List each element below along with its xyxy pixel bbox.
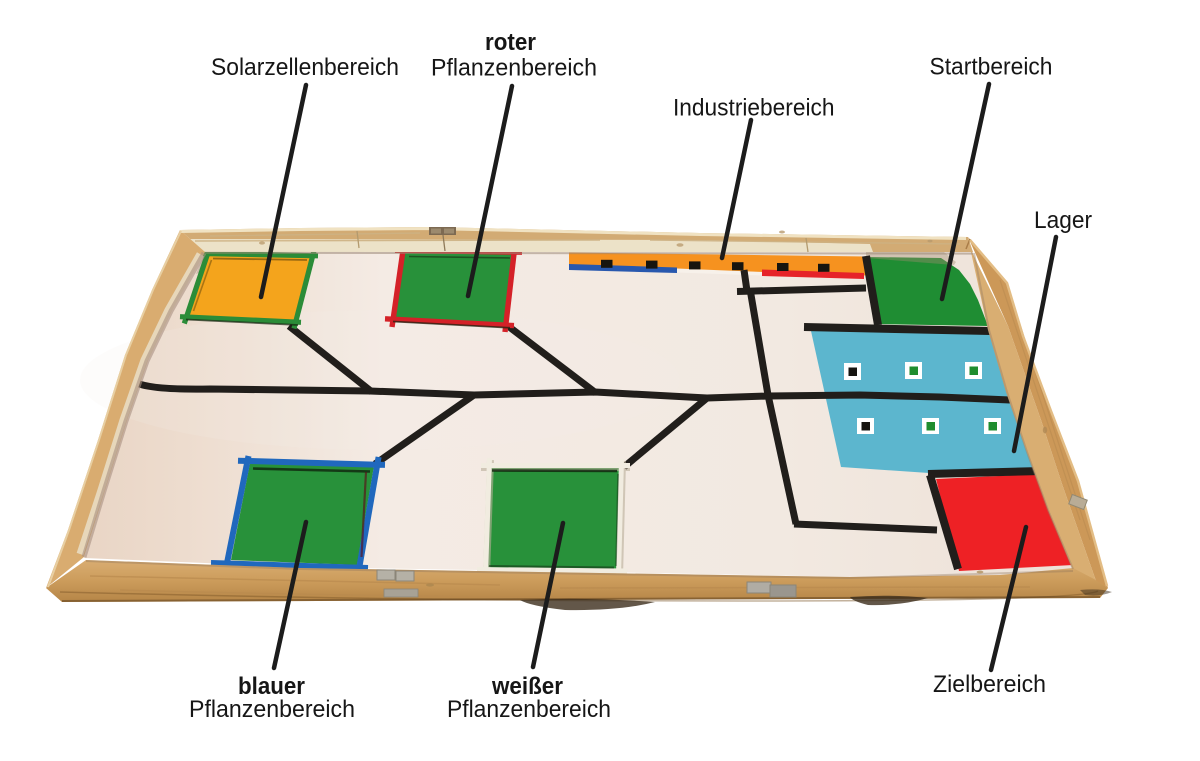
svg-text:roter: roter xyxy=(485,29,536,56)
svg-text:Pflanzenbereich: Pflanzenbereich xyxy=(189,696,355,723)
svg-text:Lager: Lager xyxy=(1034,207,1092,234)
svg-text:Pflanzenbereich: Pflanzenbereich xyxy=(447,696,611,723)
svg-text:Solarzellenbereich: Solarzellenbereich xyxy=(211,54,399,81)
svg-text:Industriebereich: Industriebereich xyxy=(673,95,835,122)
svg-text:Pflanzenbereich: Pflanzenbereich xyxy=(431,55,597,82)
svg-text:Startbereich: Startbereich xyxy=(930,54,1053,81)
svg-text:Zielbereich: Zielbereich xyxy=(933,671,1046,698)
